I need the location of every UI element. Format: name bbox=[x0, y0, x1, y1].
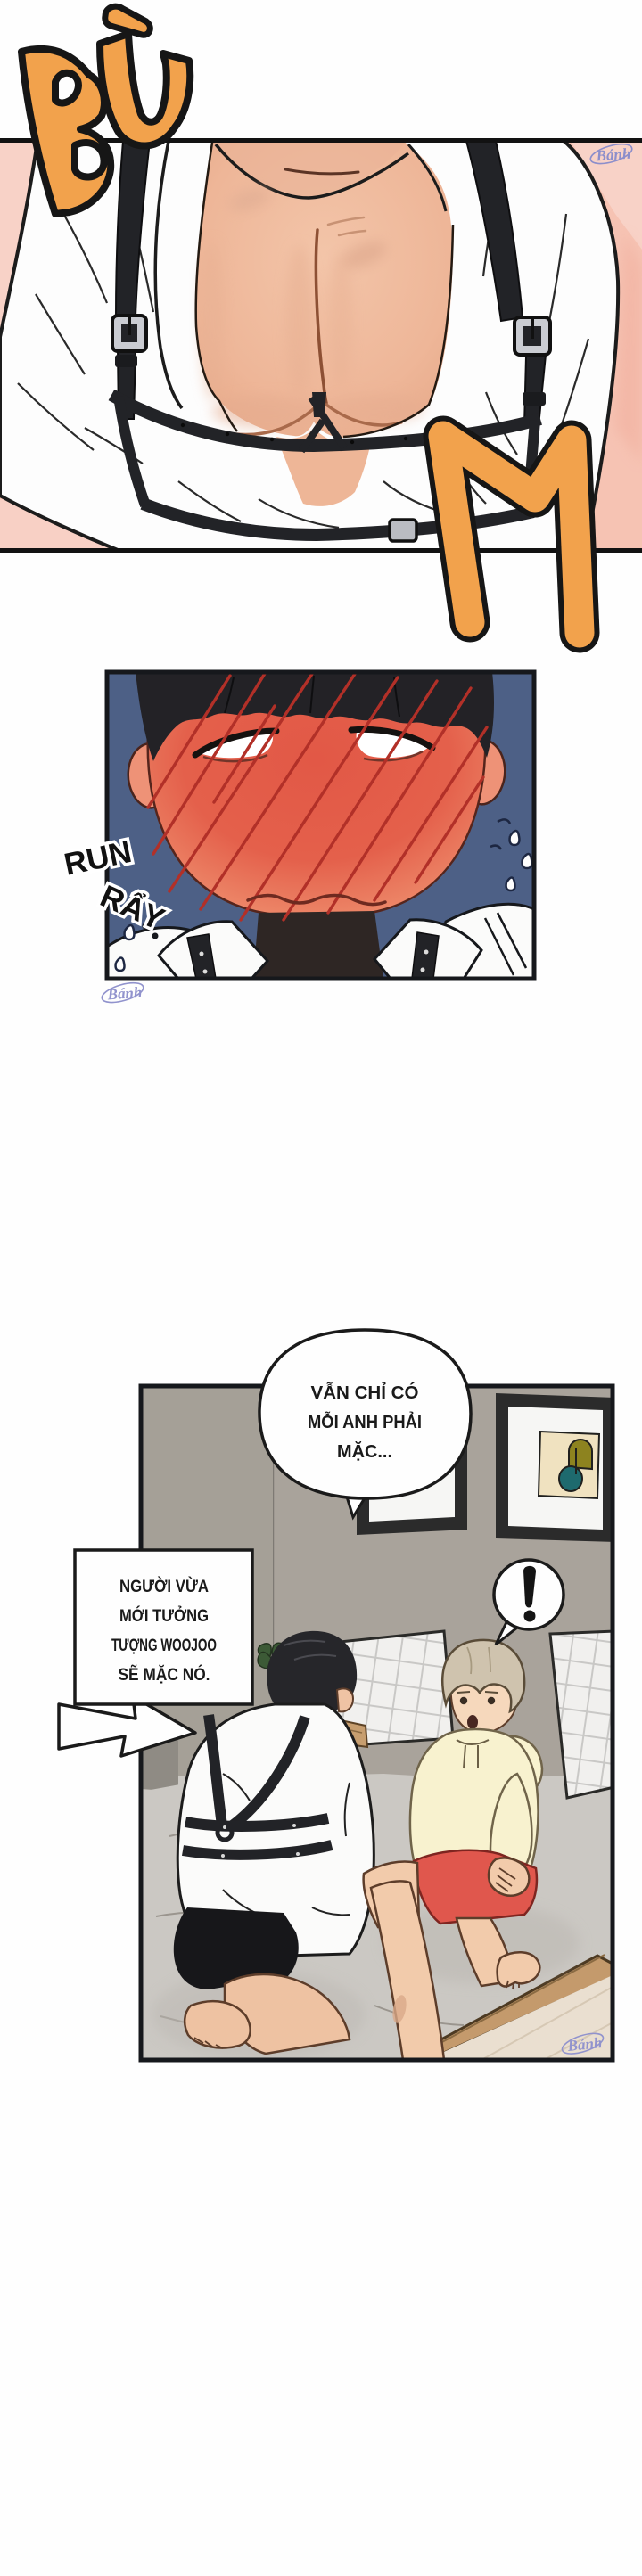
svg-text:TƯỢNG WOOJOO: TƯỢNG WOOJOO bbox=[111, 1637, 217, 1655]
svg-text:VẪN CHỈ CÓ: VẪN CHỈ CÓ bbox=[311, 1382, 419, 1403]
svg-text:MỚI TƯỞNG: MỚI TƯỞNG bbox=[119, 1606, 209, 1626]
svg-text:NGƯỜI VỪA: NGƯỜI VỪA bbox=[119, 1577, 209, 1596]
svg-text:MẶC...: MẶC... bbox=[337, 1441, 392, 1462]
svg-text:SẼ MẶC NÓ.: SẼ MẶC NÓ. bbox=[119, 1665, 210, 1685]
svg-text:MỖI ANH PHẢI: MỖI ANH PHẢI bbox=[308, 1411, 422, 1432]
